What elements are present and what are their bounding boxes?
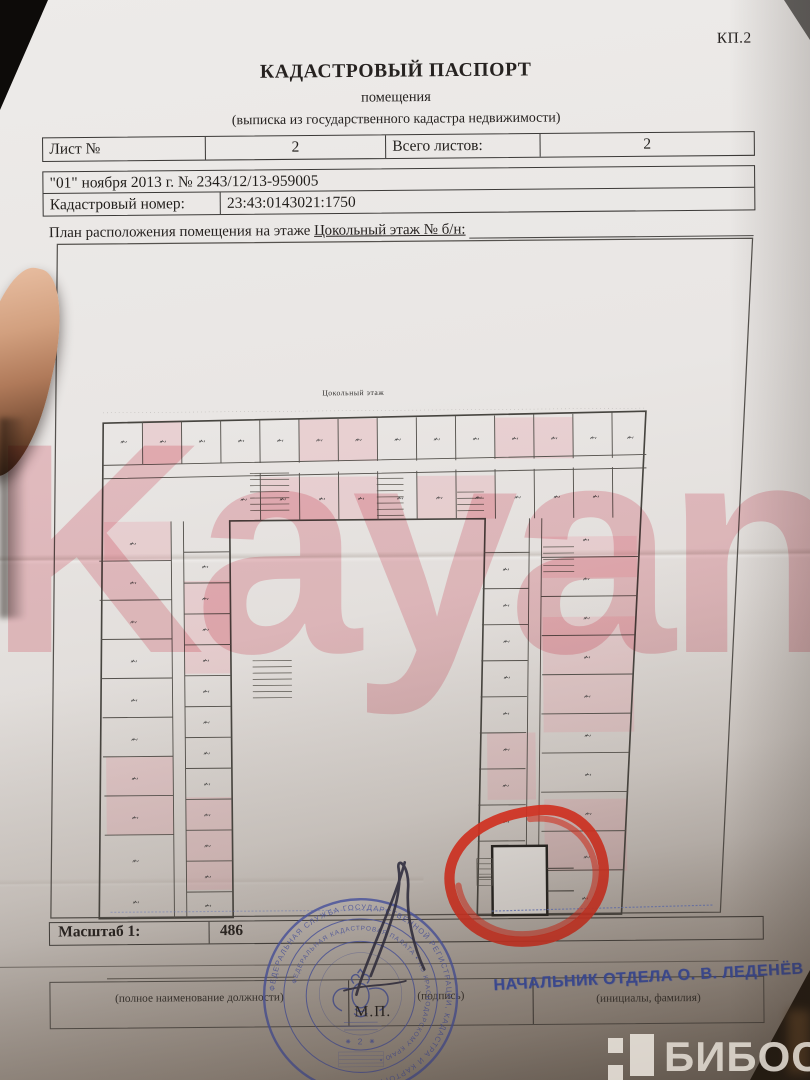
plan-caption-floor: Цокольный этаж № б/н: <box>314 221 466 240</box>
photo-of-document: КП.2 КАДАСТРОВЫЙ ПАСПОРТ помещения (выпи… <box>0 0 810 1080</box>
sheet-label: Лист № <box>43 137 206 161</box>
biboss-watermark-text: БИБОСС <box>664 1036 810 1078</box>
red-circle-annotation <box>435 798 632 956</box>
scale-value: 486 <box>210 921 244 943</box>
initials-caption: (инициалы, фамилия) <box>534 991 764 1005</box>
document-note: (выписка из государственного кадастра не… <box>41 107 752 130</box>
doc-info-table: "01" ноября 2013 г. № 2343/12/13-959005 … <box>42 165 755 217</box>
document-subtitle: помещения <box>41 87 752 110</box>
kayan-watermark: Kayan <box>0 398 810 698</box>
biboss-watermark: БИБОСС <box>608 1034 810 1080</box>
cadastral-number-label: Кадастровый номер: <box>44 192 221 215</box>
sheet-table: Лист № 2 Всего листов: 2 <box>42 131 755 162</box>
scale-label: Масштаб 1: <box>50 922 210 945</box>
total-sheets-label: Всего листов: <box>386 134 541 158</box>
document-title: КАДАСТРОВЫЙ ПАСПОРТ <box>40 57 751 86</box>
total-sheets-value: 2 <box>541 132 754 157</box>
stamp-code-block <box>339 1052 384 1067</box>
form-code: КП.2 <box>717 30 752 48</box>
stamp-center-number: ⁕ 2 ⁕ <box>345 1036 378 1046</box>
biboss-logo-icon <box>608 1034 654 1080</box>
cadastral-number-value: 23:43:0143021:1750 <box>221 188 755 214</box>
sheet-value: 2 <box>206 135 386 159</box>
stamp-fine-text <box>340 1022 381 1031</box>
plan-caption-prefix: План расположения помещения на этаже <box>49 223 314 243</box>
